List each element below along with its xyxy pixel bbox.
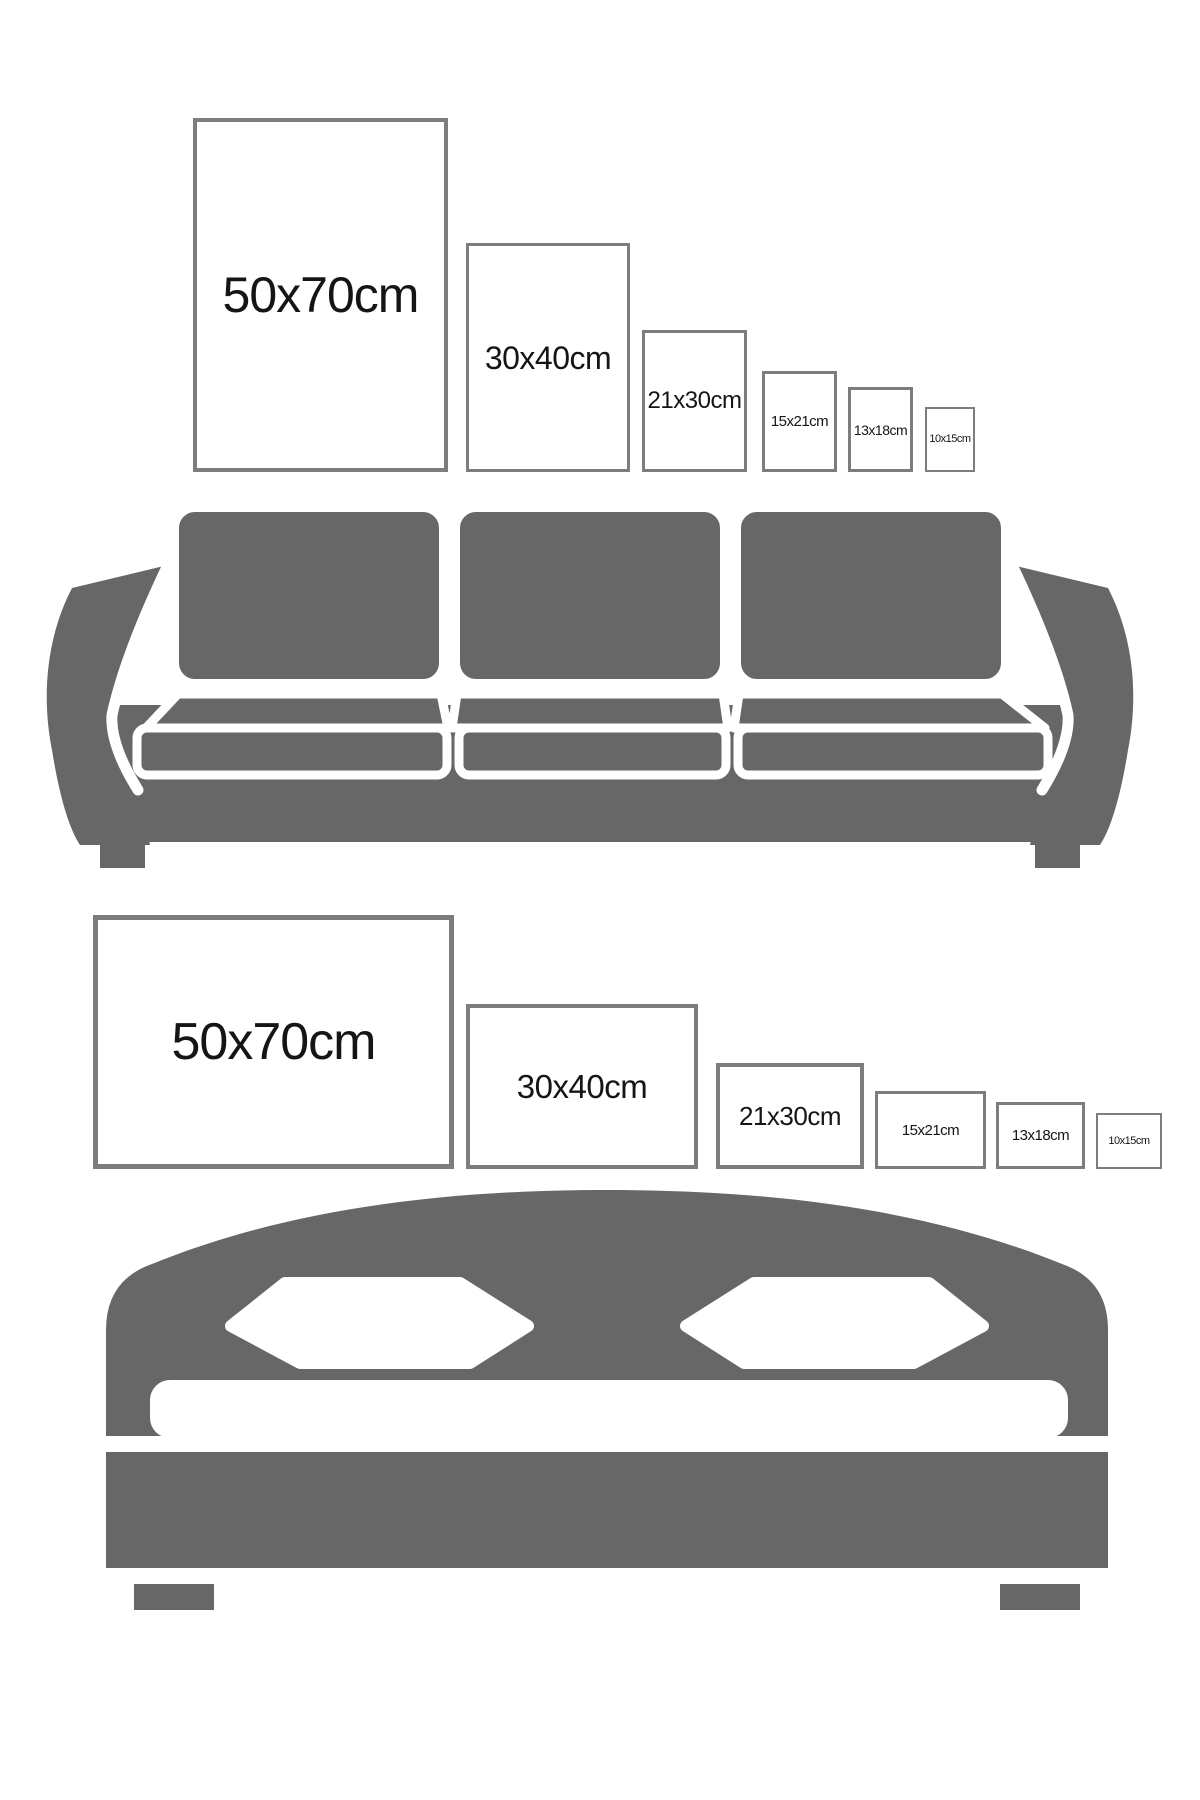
- sofa-seat-cushion-left: [137, 728, 447, 775]
- frame-size-label: 21x30cm: [648, 389, 742, 413]
- frame-size-label: 13x18cm: [1012, 1128, 1069, 1143]
- sofa-foot-right: [1035, 842, 1080, 868]
- frame-size-label: 30x40cm: [485, 342, 611, 374]
- frame-size-label: 50x70cm: [172, 1016, 376, 1068]
- bed-pillow-right: [686, 1283, 983, 1363]
- frame-size-label: 50x70cm: [223, 270, 419, 320]
- sofa-illustration: [0, 430, 1200, 890]
- frame-portrait-50x70: 50x70cm: [193, 118, 448, 472]
- sofa-foot-left: [100, 842, 145, 868]
- frame-size-label: 10x15cm: [1108, 1136, 1149, 1147]
- sofa-deck-middle: [452, 694, 728, 728]
- frame-landscape-21x30: 21x30cm: [716, 1063, 864, 1169]
- bed-foot-right: [1000, 1584, 1080, 1610]
- frame-landscape-10x15: 10x15cm: [1096, 1113, 1162, 1169]
- frame-landscape-15x21: 15x21cm: [875, 1091, 986, 1169]
- sofa-deck-right: [734, 694, 1045, 728]
- bed-pillow-left: [231, 1283, 528, 1363]
- sofa-seat-cushion-right: [738, 728, 1048, 775]
- frame-size-label: 21x30cm: [739, 1103, 841, 1129]
- frame-size-label: 30x40cm: [517, 1070, 647, 1103]
- sofa-back-cushion-left: [175, 508, 443, 683]
- frame-size-label: 15x21cm: [902, 1123, 959, 1138]
- sofa-back-cushion-middle: [456, 508, 724, 683]
- sofa-back-cushion-right: [737, 508, 1005, 683]
- bed-foot-left: [134, 1584, 214, 1610]
- size-guide-canvas: 50x70cm 30x40cm 21x30cm 15x21cm 13x18cm …: [0, 0, 1200, 1800]
- frame-landscape-30x40: 30x40cm: [466, 1004, 698, 1169]
- sofa-deck-left: [146, 694, 448, 728]
- frame-landscape-50x70: 50x70cm: [93, 915, 454, 1169]
- bed-base: [106, 1452, 1108, 1568]
- frame-size-label: 15x21cm: [771, 414, 828, 429]
- bed-mattress: [150, 1380, 1068, 1438]
- sofa-seat-cushion-middle: [459, 728, 726, 775]
- bed-illustration: [0, 1180, 1200, 1620]
- frame-landscape-13x18: 13x18cm: [996, 1102, 1085, 1169]
